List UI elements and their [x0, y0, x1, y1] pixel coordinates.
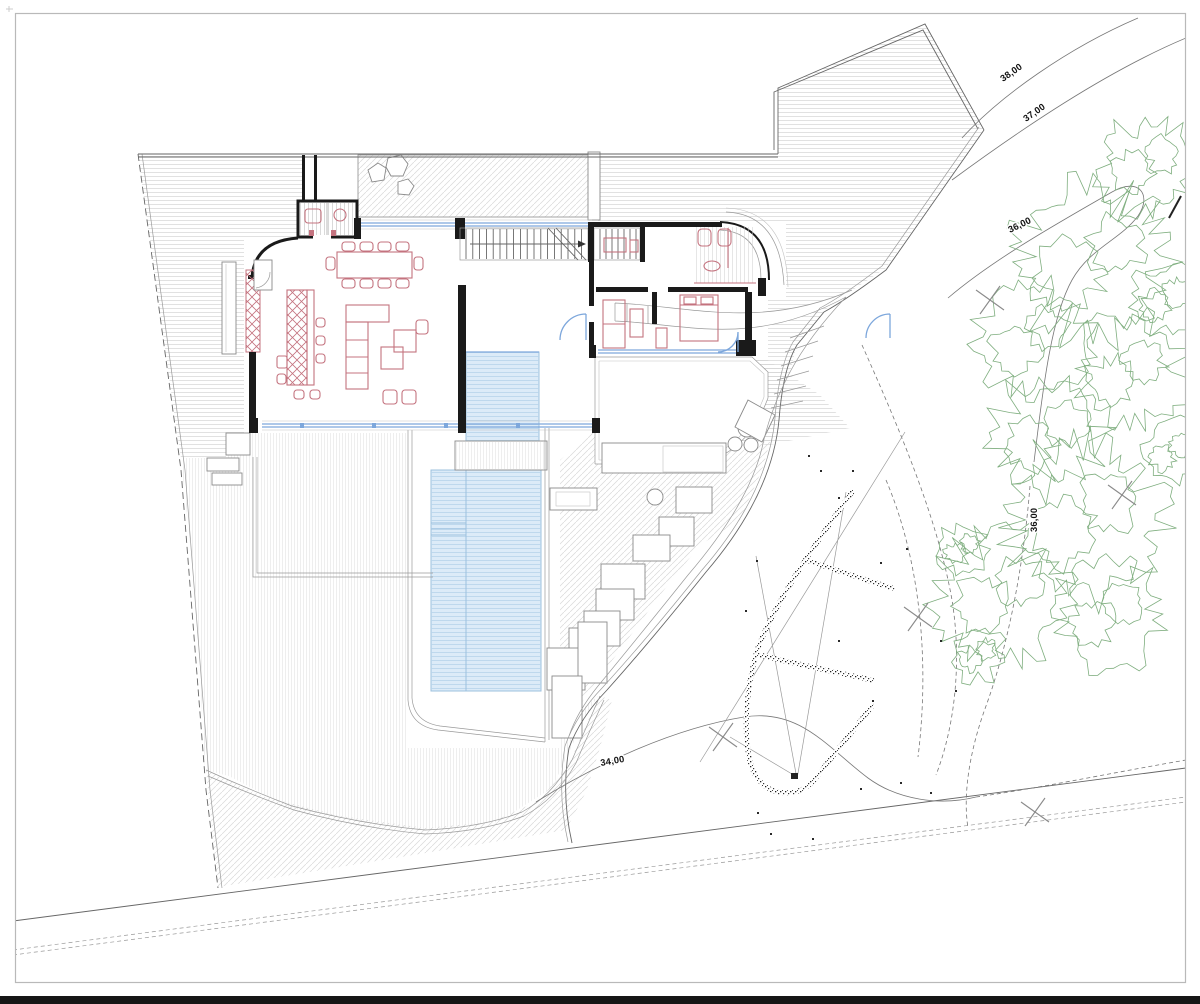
entry-wc — [298, 201, 357, 237]
bush — [647, 489, 663, 505]
tree-canopy — [951, 577, 1009, 634]
gate-arc — [866, 314, 890, 338]
fence-wall — [302, 155, 305, 201]
planter — [207, 458, 239, 471]
tree-canopy — [976, 637, 996, 661]
contour-label: 38,00 — [998, 62, 1024, 84]
edge-tick — [1169, 196, 1181, 218]
tree-canopy — [957, 645, 982, 673]
planter — [212, 473, 242, 485]
window-screen — [222, 262, 236, 354]
tree-canopy — [1068, 602, 1116, 648]
tree-canopy — [952, 628, 1006, 685]
living-east-wall — [458, 285, 466, 433]
rock-garden-strip — [358, 152, 600, 220]
bottom-bar — [0, 996, 1200, 1004]
tree-canopy — [1044, 400, 1090, 449]
swimming-pool — [406, 340, 560, 748]
tree-canopy — [1110, 149, 1157, 194]
tree-canopy — [1102, 583, 1142, 624]
tree-canopy — [1074, 307, 1194, 431]
kitchen-island — [287, 290, 307, 385]
tree-canopy — [967, 275, 1098, 402]
pool-bridge — [455, 441, 547, 470]
tree-canopy — [995, 557, 1045, 607]
tree-canopy — [1004, 415, 1061, 475]
tree-canopy — [1024, 304, 1071, 352]
site-plan-page: 38,00 37,00 36,00 36,00 34,00 — [0, 0, 1200, 1004]
survey-marker — [791, 773, 798, 779]
tree-canopy — [1093, 117, 1200, 220]
corner-tick — [6, 6, 13, 12]
bush — [728, 437, 742, 451]
tree-canopy — [1080, 474, 1136, 533]
scatter-dots — [745, 455, 957, 840]
tree-canopy — [1162, 277, 1193, 309]
contour-label: 34,00 — [600, 754, 626, 768]
contour-label: 36,00 — [1029, 508, 1039, 532]
step-block — [226, 433, 250, 455]
pillar — [588, 152, 600, 220]
site-plan-drawing: 38,00 37,00 36,00 36,00 34,00 — [0, 0, 1200, 1004]
contour-label: 36,00 — [1006, 215, 1032, 235]
tree-canopies — [923, 117, 1200, 685]
bush — [744, 438, 758, 452]
terrain-hatch-areas — [138, 24, 984, 887]
contour-label: 37,00 — [1021, 102, 1047, 124]
tree-canopy — [1140, 415, 1200, 486]
tree-canopy — [1007, 171, 1183, 350]
bathroom — [694, 227, 756, 283]
tree-canopy — [1148, 445, 1177, 474]
road — [13, 768, 1186, 955]
tree-canopy — [987, 326, 1045, 377]
fence-wall — [314, 155, 317, 201]
tree-canopy — [943, 542, 968, 563]
tree-canopy — [923, 522, 1078, 669]
